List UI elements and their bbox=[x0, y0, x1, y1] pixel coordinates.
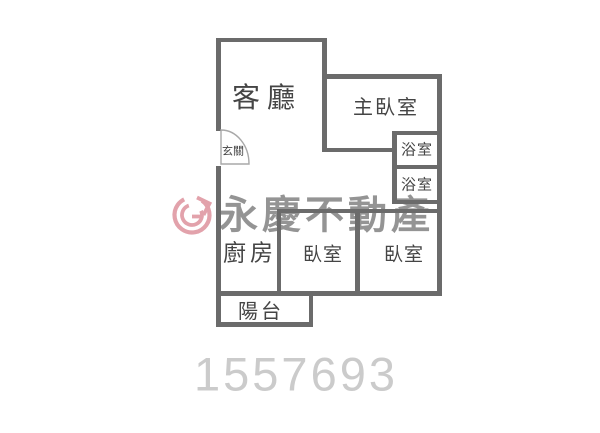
wall-bath-bottom bbox=[392, 200, 442, 204]
listing-id: 1557693 bbox=[194, 351, 398, 398]
label-bathroom-upper: 浴室 bbox=[401, 143, 433, 158]
wall-left-lower bbox=[216, 166, 221, 327]
label-bedroom-left: 臥室 bbox=[303, 246, 343, 265]
label-bathroom-lower: 浴室 bbox=[401, 178, 433, 193]
wall-bath-divider bbox=[392, 165, 442, 169]
label-entry: 玄關 bbox=[222, 147, 244, 158]
wall-left-upper bbox=[216, 38, 221, 131]
floorplan-canvas: 永慶不動產 1557693 客廳 主臥室 浴室 浴室 廚房 臥室 臥室 陽台 玄… bbox=[0, 0, 600, 433]
wall-top bbox=[216, 38, 327, 42]
wall-bath-top bbox=[392, 131, 442, 135]
wall-bedroom-left bbox=[277, 209, 281, 296]
label-living-room: 客廳 bbox=[232, 84, 302, 112]
wall-balcony-right bbox=[309, 291, 313, 327]
label-balcony: 陽台 bbox=[238, 302, 284, 322]
label-bedroom-right: 臥室 bbox=[384, 246, 424, 265]
wall-living-master-divider bbox=[322, 38, 327, 152]
label-kitchen: 廚房 bbox=[223, 242, 277, 265]
wall-bottom-main bbox=[216, 291, 442, 296]
wall-right bbox=[437, 74, 442, 296]
label-master-bedroom: 主臥室 bbox=[353, 98, 419, 118]
wall-master-top bbox=[322, 74, 442, 79]
brand-logo-icon bbox=[165, 188, 219, 242]
wall-master-bottom bbox=[322, 148, 397, 152]
wall-bedroom-divider bbox=[355, 209, 360, 296]
